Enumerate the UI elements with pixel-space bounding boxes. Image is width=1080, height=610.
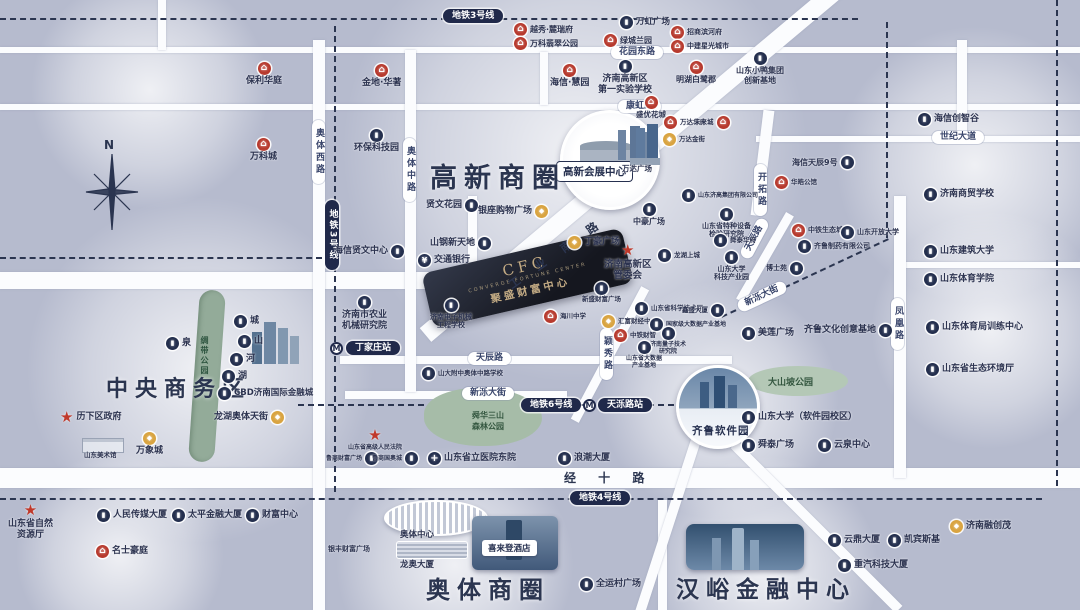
marker-label: 山东省大数据 产业基地 [626,355,662,369]
map-marker: ▮云鼎大厦 [828,534,880,547]
map-marker: ▮人民传媒大厦 [97,509,167,522]
road-aoti-middle [405,50,416,392]
map-marker: ◆济南融创茂 [950,520,1011,533]
location-map: 绸带公园 舜华三山 森林公园 大山坡公园 高新会展中心 齐鲁软件园 喜来登酒店 … [0,0,1080,610]
shopping-icon: ◆ [950,520,963,533]
sanshan-forest-park-label: 舜华三山 森林公园 [472,410,504,432]
marker-label: 河 [246,354,255,365]
map-marker: ▮财富中心 [246,509,298,522]
building-icon: ▮ [218,387,231,400]
map-marker: ▮山钢新天地 [430,237,491,250]
marker-label: 山东小鸭集团 创新基地 [736,66,784,85]
metro-line3-top [0,18,858,20]
building-icon: ▮ [370,129,383,142]
building-icon: ▮ [798,240,811,253]
marker-label: 海信·慧园 [550,78,589,89]
map-marker: ★济南高新区 管委会 [604,243,652,282]
marker-label: 中建星光城市 [687,42,729,50]
metro-line3-west [0,257,322,259]
map-marker: 龙奥大厦 [400,560,434,570]
map-marker: ▮重汽科技大厦 [838,559,908,572]
marker-label: 浪潮大厦 [574,453,610,464]
building-icon: ▮ [682,189,695,202]
building-icon: ▮ [635,302,648,315]
marker-label: 财富中心 [262,510,298,521]
map-marker: ⌂华皓公馆 [775,176,817,189]
compass-north-label: N [104,138,114,152]
marker-label: 华皓公馆 [791,179,817,187]
map-marker: 山东美术馆 [84,452,117,460]
road-minor-v2 [540,52,548,105]
home-icon: ⌂ [257,138,270,151]
map-marker: ▮济南高新区 第一实验学校 [598,60,652,96]
map-marker: ⌂海川中学 [544,310,586,323]
road-label: 世纪大道 [932,131,984,144]
marker-label: 绿城兰园 [620,36,652,46]
marker-label: 龙湖上城 [674,252,700,260]
map-marker: ⌂中铁生态城 [792,224,843,237]
building-icon: ▮ [580,578,593,591]
building-icon: ▮ [358,296,371,309]
marker-label: 中铁生态城 [808,226,843,234]
metro-icon: M [583,399,596,412]
marker-label: 城 [250,316,259,327]
metro-line-label: 地铁3号线 [325,200,339,270]
marker-label: 舜泰广场 [758,440,794,451]
cbd-tower-3 [278,328,288,364]
hospital-icon: + [428,452,441,465]
home-icon: ⌂ [690,61,703,74]
map-marker: ▮万虹广场 [620,16,670,29]
building-icon: ▮ [742,327,755,340]
marker-label: 交通银行 [434,255,470,266]
marker-label: 历下区政府 [76,412,121,423]
map-marker: 奥体中心 [400,530,434,540]
map-marker: ▮山 [238,335,263,348]
marker-label: 山东美术馆 [84,452,117,460]
metro-line-label: 地铁4号线 [570,491,630,505]
marker-label: 山东省立医院东院 [444,453,516,464]
building-icon: ▮ [638,341,651,354]
marker-label: 山 [254,336,263,347]
marker-label: 山东体育局训练中心 [942,322,1023,333]
building-icon: ▮ [172,509,185,522]
map-marker: ◆汇富财经中心 [602,315,657,328]
marker-label: 海川中学 [560,313,586,321]
home-icon: ⌂ [514,23,527,36]
marker-label: 齐鲁文化创意基地 [804,325,876,336]
building-icon: ▮ [222,370,235,383]
marker-label: 云鼎大厦 [844,535,880,546]
map-marker: ⌂明湖白鹭郡 [676,61,716,85]
map-marker: ▮山东省大数据 产业基地 [626,341,662,369]
home-icon: ⌂ [604,34,617,47]
map-marker: ▮美莲广场 [742,327,794,340]
building-icon: ▮ [391,245,404,258]
metro-line-label: 地铁3号线 [443,9,503,23]
marker-label: 济南商贸学校 [940,189,994,200]
map-marker: ▮中豪广场 [633,203,665,227]
building-icon: ▮ [166,337,179,350]
road-label: 颖秀路 [600,328,613,380]
shopping-icon: ◆ [602,315,615,328]
marker-label: 未来城 [694,119,714,127]
map-marker: ▮齐鲁制药有限公司 [798,240,870,253]
building-icon: ▮ [246,509,259,522]
home-icon: ⌂ [671,40,684,53]
building-icon: ▮ [924,245,937,258]
map-marker: ▮山东建筑大学 [924,245,994,258]
metro-station-label: 天泺路站 [598,398,652,412]
building-icon: ▮ [790,262,803,275]
road-label: 新泺大街 [462,387,514,400]
building-icon: ▮ [841,226,854,239]
marker-label: 新盛财富广场 [582,296,621,304]
marker-label: 环保科技园 [354,143,399,154]
marker-label: 银丰财富广场 [328,545,370,553]
marker-label: 山钢新天地 [430,238,475,249]
map-marker: ▮济南市农业 机械研究院 [342,296,387,332]
map-marker: ◆万达金街 [663,133,705,146]
software-park-tower-1 [700,382,709,408]
home-icon: ⌂ [664,116,677,129]
building-icon: ▮ [711,304,724,317]
road-horizontal-wide [0,272,452,289]
map-marker: ▮山大附中奥体中路学校 [422,367,503,380]
map-marker: ▮太平金融大厦 [172,509,242,522]
marker-label: 鑫盛大厦 [682,307,708,315]
marker-label: 山大附中奥体中路学校 [438,370,503,378]
road-tianchen [340,356,732,364]
shopping-icon: ◆ [568,236,581,249]
shopping-icon: ◆ [271,411,284,424]
marker-label: 济南电子机械 工程学校 [430,313,472,330]
home-icon: ⌂ [775,176,788,189]
marker-label: 山东省自然 资源厅 [8,519,53,541]
marker-label: 太平金融大厦 [188,510,242,521]
marker-label: 中豪广场 [633,217,665,227]
map-marker: ⌂金地·华著 [362,64,401,89]
road-label: 凤凰路 [891,298,904,350]
building-icon: ▮ [620,16,633,29]
ribbon-park-label: 绸带公园 [199,336,210,376]
marker-label: 海信天辰9号 [792,158,838,168]
marker-label: 泉 [182,338,191,349]
map-marker: ▮山东小鸭集团 创新基地 [736,52,784,85]
map-marker: ▮济南电子机械 工程学校 [430,299,472,330]
building-icon: ▮ [234,315,247,328]
map-marker: ⌂绿城兰园 [604,34,652,47]
road-east-horizontal [898,262,1080,268]
home-icon: ⌂ [375,64,388,77]
wanda-tower-1 [636,128,645,162]
hanyu-tower-2 [712,538,721,570]
marker-label: 龙湖奥体天街 [214,412,268,423]
star-icon: ★ [24,503,37,518]
marker-label: 明湖白鹭郡 [676,75,716,85]
shopping-icon: ◆ [535,205,548,218]
metro-station-label: 丁家庄站 [346,341,400,355]
building-icon: ▮ [662,327,675,340]
map-marker: ▮城 [234,315,259,328]
marker-label: 山东建筑大学 [940,246,994,257]
map-marker: 银丰财富广场 [328,545,370,553]
map-marker: ▮舜泰华府 [714,234,756,247]
building-icon: ▮ [879,324,892,337]
building-icon: ▮ [478,237,491,250]
building-icon: ▮ [888,534,901,547]
building-icon: ▮ [841,156,854,169]
marker-label: 万科城 [250,152,277,163]
marker-label: 齐鲁制药有限公司 [814,242,870,250]
building-icon: ▮ [465,199,478,212]
map-marker: ⌂越秀·麓瑞府 [514,23,573,36]
marker-label: 博士苑 [766,264,787,272]
road-label: 经 十 路 [556,470,661,486]
map-marker: ▮贤文花园 [426,199,478,212]
marker-label: 云泉中心 [834,440,870,451]
marker-label: 山东大学（软件园校区） [758,412,857,423]
map-marker: ▮山东开放大学 [841,226,899,239]
cbd-tower-4 [290,336,299,364]
map-marker: ⌂名士豪庭 [96,545,148,558]
building-icon: ▮ [445,299,458,312]
map-marker: ★历下区政府 [60,410,121,425]
building-icon: ▮ [422,367,435,380]
metro-line4-north [1056,0,1058,486]
home-icon: ⌂ [514,37,527,50]
marker-label: 龙奥大厦 [400,560,434,570]
star-icon: ★ [368,428,381,443]
road-label: 奥体西路 [312,120,325,184]
metro-line3-right [886,22,888,238]
home-icon: ⌂ [563,64,576,77]
map-marker: ▮山东大学 科技产业园 [714,251,749,282]
building-icon: ▮ [238,335,251,348]
software-park-tower-3 [728,385,737,408]
road-minor-v5 [158,0,166,50]
district-label: 奥体商圈 [426,570,550,605]
sheraton-label: 喜来登酒店 [482,540,537,556]
map-marker: ⌂未来城 [694,116,730,129]
building-icon: ▮ [742,411,755,424]
map-marker: ▮新盛财富广场 [582,282,621,304]
building-icon: ▮ [595,282,608,295]
map-marker: ⌂招商滨河府 [671,26,722,39]
hanyu-tower-1 [732,528,744,570]
hanyu-tower-3 [750,540,759,570]
district-label: 高新商圈 [430,156,566,195]
map-marker: ▮云泉中心 [818,439,870,452]
marker-label: 济南融创茂 [966,521,1011,532]
marker-label: 万达广场 [622,164,652,173]
marker-label: 湖 [238,371,247,382]
building-icon: ▮ [924,273,937,286]
marker-label: 舜泰华府 [730,237,756,245]
home-icon: ⌂ [671,26,684,39]
marker-label: 盛优花城 [636,110,666,119]
marker-label: 山东开放大学 [857,228,899,236]
map-marker: ▮山东省生态环境厅 [926,363,1014,376]
marker-label: 济南高新区 管委会 [604,259,652,282]
building-icon: ▮ [924,188,937,201]
building-icon: ▮ [918,113,931,126]
longao-building [396,541,468,559]
map-marker: ▮全运村广场 [580,578,641,591]
home-icon: ⌂ [717,116,730,129]
shopping-icon: ◆ [143,432,156,445]
dashanpo-park-label: 大山坡公园 [768,375,813,388]
marker-label: 招商滨河府 [687,28,722,36]
building-icon: ▮ [720,208,733,221]
map-marker: ▮湖 [222,370,247,383]
building-icon: ▮ [643,203,656,216]
marker-label: 山东省生态环境厅 [942,364,1014,375]
map-marker: ▮博士苑 [766,262,803,275]
building-icon: ▮ [97,509,110,522]
marker-label: 山东大学 科技产业园 [714,265,749,282]
building-icon: ▮ [838,559,851,572]
marker-label: 济南高新区 第一实验学校 [598,74,652,96]
road-label: 花园东路 [611,46,663,59]
map-marker: ◆龙湖奥体天街 [214,411,284,424]
marker-label: 万象城 [136,446,163,457]
map-marker: ◆万象城 [136,432,163,457]
building-icon: ▮ [742,439,755,452]
map-marker: ▮海信创智谷 [918,113,979,126]
home-icon: ⌂ [96,545,109,558]
marker-label: 保利华庭 [246,76,282,87]
map-marker: ▮浪潮大厦 [558,452,610,465]
home-icon: ⌂ [544,310,557,323]
building-icon: ▮ [926,363,939,376]
map-marker: ▮齐鲁文化创意基地 [804,324,892,337]
road-jingshi [0,468,1080,488]
building-icon: ▮ [558,452,571,465]
marker-label: 凯宾斯基 [904,535,940,546]
wanda-tower-2 [647,124,658,162]
marker-label: 贤文花园 [426,200,462,211]
building-icon: ▮ [828,534,841,547]
marker-label: 万虹广场 [636,17,670,27]
building-icon: ▮ [926,321,939,334]
map-marker: ▮山东济高集团有限公司 [682,189,758,202]
building-icon: ▮ [725,251,738,264]
marker-label: 山东济高集团有限公司 [698,192,758,199]
map-marker: ¥交通银行 [418,254,470,267]
marker-label: 人民传媒大厦 [113,510,167,521]
marker-label: 万科翡翠公园 [530,39,578,49]
marker-label: 鲁商财富广场 [326,455,362,462]
software-park-label: 齐鲁软件园 [692,423,750,438]
metro-line4 [0,498,1042,500]
map-marker: ▮环保科技园 [354,129,399,154]
marker-label: 海信创智谷 [934,114,979,125]
marker-label: 重汽科技大厦 [854,560,908,571]
road-shiji-avenue [756,136,1080,142]
shopping-icon: ◆ [663,133,676,146]
map-marker: 万达广场 [622,164,652,173]
road-label: 天辰路 [468,352,511,365]
road-label: 奥体中路 [403,138,416,202]
metro-icon: M [330,342,343,355]
map-marker: ▮济南商贸学校 [924,188,994,201]
building-icon: ▮ [230,353,243,366]
metro-line-label: 地铁6号线 [521,398,581,412]
map-marker: ▮鲁商财富广场 [326,452,378,465]
map-marker: ▮海信贤文中心 [334,245,404,258]
home-icon: ⌂ [258,62,271,75]
map-marker: ▮舜泰广场 [742,439,794,452]
map-marker: ⌂万科翡翠公园 [514,37,578,50]
map-marker: ⌂盛优花城 [636,96,666,119]
district-label: 汉峪金融中心 [676,570,856,604]
marker-label: 济南市农业 机械研究院 [342,310,387,332]
marker-label: CBD济南国际金融城 [234,388,313,398]
building-icon: ▮ [714,234,727,247]
map-marker: ⌂万科城 [250,138,277,163]
marker-label: 万达金街 [679,136,705,144]
bank-icon: ¥ [418,254,431,267]
map-marker: ▮山东体育局训练中心 [926,321,1023,334]
map-marker: ▮鑫盛大厦 [682,304,724,317]
marker-label: 美莲广场 [758,328,794,339]
star-icon: ★ [60,410,73,425]
marker-label: 山东体育学院 [940,274,994,285]
map-marker: ⌂海信·慧园 [550,64,589,89]
map-marker: ▮凯宾斯基 [888,534,940,547]
building-icon: ▮ [405,452,418,465]
map-marker: ⌂中建星光城市 [671,40,729,53]
building-icon: ▮ [658,249,671,262]
marker-label: 奥体中心 [400,530,434,540]
building-icon: ▮ [619,60,632,73]
star-icon: ★ [621,243,634,258]
marker-label: 名士豪庭 [112,546,148,557]
map-marker: +山东省立医院东院 [428,452,516,465]
building-icon: ▮ [818,439,831,452]
marker-label: 金地·华著 [362,78,401,89]
cbd-tower-2 [264,322,276,364]
building-icon: ▮ [754,52,767,65]
map-marker: ▮龙湖上城 [658,249,700,262]
map-marker: ▮河 [230,353,255,366]
map-marker: ▮鲁商国奥城 [372,452,418,465]
compass-icon [84,152,140,232]
map-marker: ▮山东体育学院 [924,273,994,286]
marker-label: 鲁商国奥城 [372,455,402,462]
expo-tower-1 [618,130,626,160]
hanyu-photo [686,524,804,570]
marker-label: 全运村广场 [596,579,641,590]
map-marker: ▮CBD济南国际金融城 [218,387,313,400]
marker-label: 海信贤文中心 [334,246,388,257]
marker-label: 越秀·麓瑞府 [530,25,573,35]
map-marker: ▮海信天辰9号 [792,156,854,169]
marker-label: 银座购物广场 [478,206,532,217]
map-marker: ⌂保利华庭 [246,62,282,87]
software-park-tower-2 [714,376,725,408]
home-icon: ⌂ [645,96,658,109]
marker-label: 山东省高级人民法院 [348,444,402,451]
map-marker: ◆银座购物广场 [478,205,548,218]
map-marker: ★山东省高级人民法院 [348,428,402,451]
map-marker: ★山东省自然 资源厅 [8,503,53,541]
map-marker: ▮泉 [166,337,191,350]
map-marker: ▮山东大学（软件园校区） [742,411,857,424]
home-icon: ⌂ [792,224,805,237]
